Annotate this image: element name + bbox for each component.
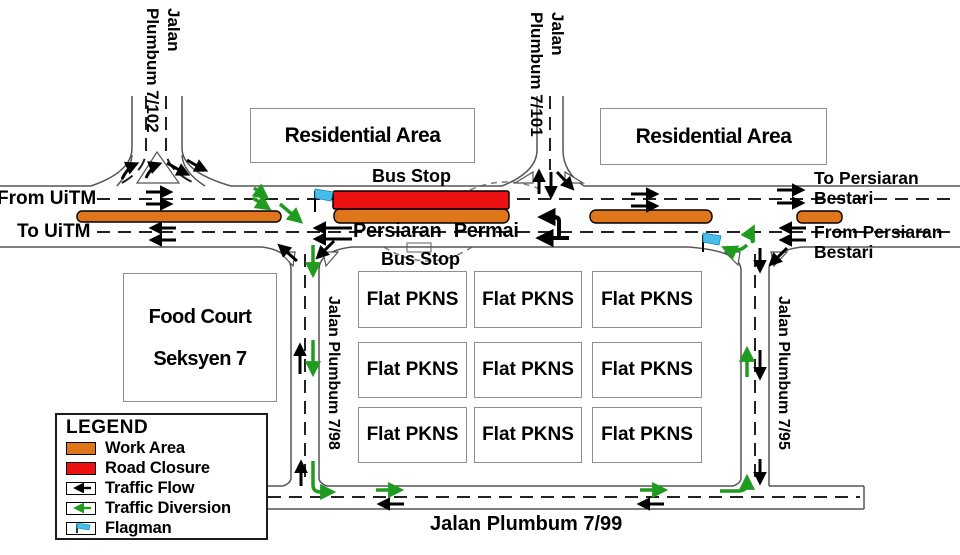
flagman-flag-icon	[66, 522, 96, 535]
legend-item-flagman: Flagman	[66, 518, 260, 538]
flat-pkns-box: Flat PKNS	[592, 342, 702, 398]
label-jalan-plumbum-7-101: Jalan Plumbum 7/101	[526, 12, 568, 137]
legend-item-road-closure: Road Closure	[66, 458, 260, 478]
label-to-persiaran-bestari: To Persiaran Bestari	[814, 169, 919, 208]
flat-pkns-box: Flat PKNS	[358, 342, 467, 398]
food-court-line2: Seksyen 7	[153, 338, 246, 380]
label-jalan-plumbum-7-102: Jalan Plumbum 7/102	[142, 8, 184, 133]
residential-area-label: Residential Area	[636, 125, 792, 149]
work-area-swatch	[66, 442, 96, 455]
residential-area-box-left: Residential Area	[250, 108, 475, 163]
legend-title: LEGEND	[66, 417, 260, 438]
legend-item-traffic-flow: Traffic Flow	[66, 478, 260, 498]
label-jalan-plumbum-7-98: Jalan Plumbum 7/98	[323, 296, 343, 450]
flat-pkns-box: Flat PKNS	[474, 271, 582, 328]
label-bus-stop-north: Bus Stop	[372, 166, 451, 186]
traffic-diversion-arrow-icon	[66, 502, 96, 515]
legend-item-traffic-diversion: Traffic Diversion	[66, 498, 260, 518]
flat-pkns-box: Flat PKNS	[592, 407, 702, 463]
label-persiaran-permai: Persiaran Permai	[353, 220, 519, 242]
label-to-uitm: To UiTM	[17, 221, 91, 242]
traffic-flow-arrow-icon	[66, 482, 96, 495]
flat-pkns-box: Flat PKNS	[358, 407, 467, 463]
residential-area-box-right: Residential Area	[600, 108, 827, 165]
legend-panel: LEGEND Work Area Road Closure Traffic Fl…	[55, 413, 268, 540]
label-from-uitm: From UiTM	[0, 188, 96, 209]
flat-pkns-box: Flat PKNS	[474, 407, 582, 463]
flagman-icon	[315, 189, 333, 212]
label-bus-stop-south: Bus Stop	[381, 249, 460, 269]
flat-pkns-box: Flat PKNS	[592, 271, 702, 328]
label-from-persiaran-bestari: From Persiaran Bestari	[814, 223, 942, 262]
road-closure-bar	[333, 191, 509, 209]
traffic-management-plan: Residential Area Residential Area Food C…	[0, 0, 960, 555]
residential-area-label: Residential Area	[285, 124, 441, 148]
label-jalan-plumbum-7-99: Jalan Plumbum 7/99	[430, 513, 622, 535]
food-court-line1: Food Court	[149, 296, 252, 338]
label-jalan-plumbum-7-95: Jalan Plumbum 7/95	[773, 296, 793, 450]
flat-pkns-box: Flat PKNS	[358, 271, 467, 328]
legend-item-work-area: Work Area	[66, 438, 260, 458]
road-closure-swatch	[66, 462, 96, 475]
flat-pkns-box: Flat PKNS	[474, 342, 582, 398]
food-court-box: Food Court Seksyen 7	[123, 273, 277, 402]
